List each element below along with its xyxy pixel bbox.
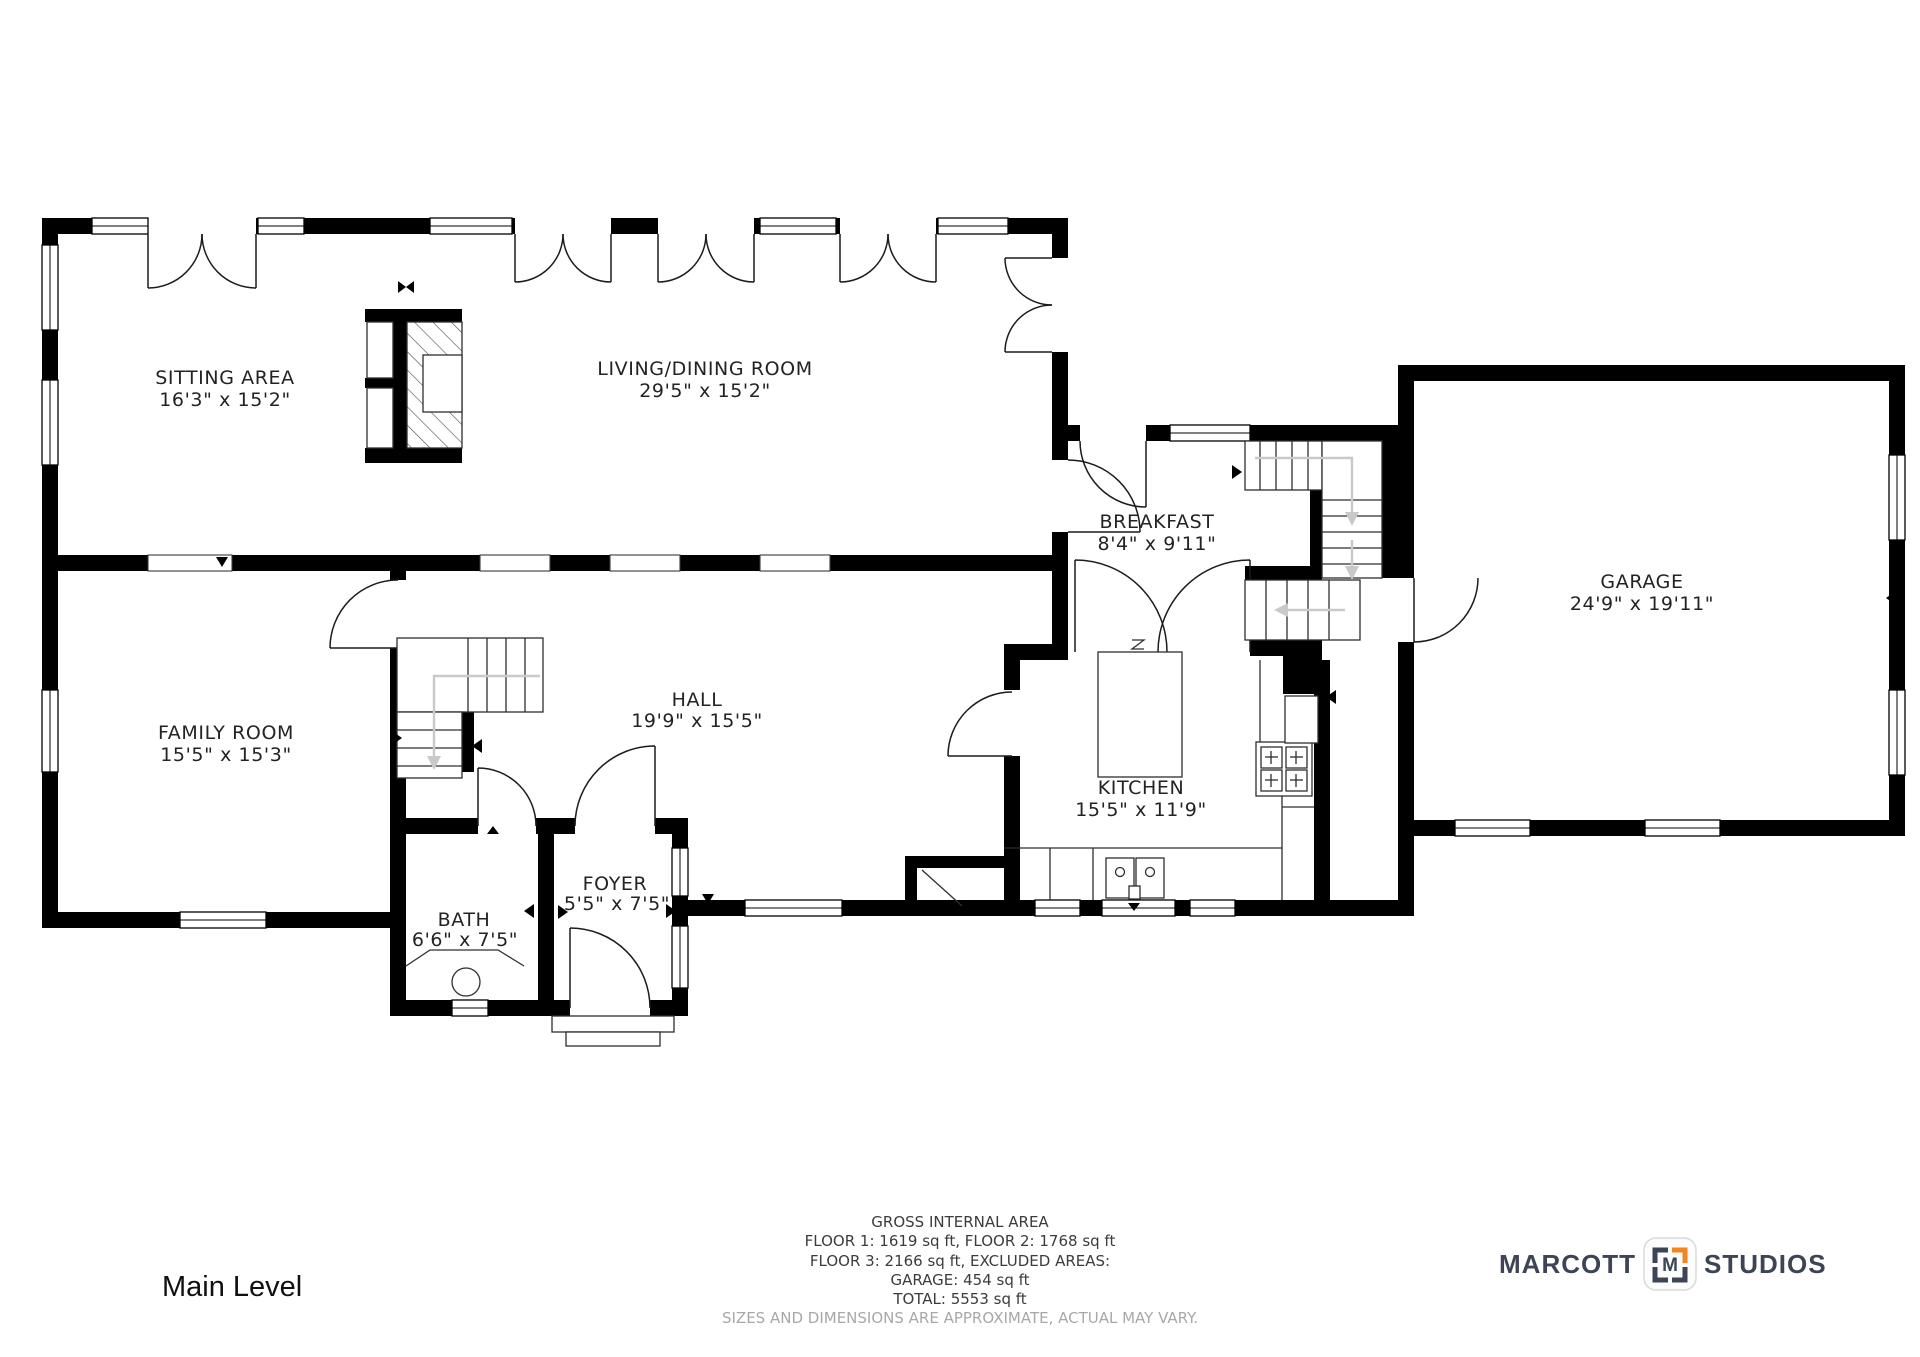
window-icon (1190, 900, 1235, 916)
room-label-breakfast: BREAKFAST (1100, 511, 1215, 533)
window-icon (1035, 900, 1080, 916)
window-icon (1102, 900, 1175, 916)
window-icon (258, 218, 304, 234)
window-icon (672, 926, 688, 988)
brand-name-right: STUDIOS (1704, 1249, 1827, 1279)
area-summary-line: TOTAL: 5553 sq ft (892, 1290, 1026, 1308)
window-icon (42, 245, 58, 330)
room-label-bath: BATH (438, 909, 491, 931)
window-icon (42, 380, 58, 465)
area-summary: GROSS INTERNAL AREA FLOOR 1: 1619 sq ft,… (722, 1213, 1198, 1327)
room-dims-breakfast: 8'4" x 9'11" (1098, 533, 1217, 555)
room-label-living-dining: LIVING/DINING ROOM (597, 358, 812, 380)
room-dims-foyer: 5'5" x 7'5" (564, 893, 670, 915)
room-label-foyer: FOYER (583, 873, 648, 895)
room-dims-garage: 24'9" x 19'11" (1570, 593, 1714, 615)
kitchen-island (1098, 640, 1182, 777)
window-icon (180, 912, 266, 928)
room-label-kitchen: KITCHEN (1098, 777, 1185, 799)
bath-vanity (406, 950, 524, 996)
window-icon (1889, 455, 1905, 540)
window-icon (760, 218, 836, 234)
room-label-sitting-area: SITTING AREA (155, 367, 295, 389)
window-icon (92, 218, 148, 234)
brand-name-left: MARCOTT (1499, 1249, 1636, 1279)
room-label-family-room: FAMILY ROOM (158, 722, 294, 744)
window-icon (1889, 690, 1905, 775)
room-label-hall: HALL (672, 689, 723, 711)
window-icon (1170, 425, 1250, 441)
brand-monogram-letter: M (1662, 1255, 1678, 1276)
room-dims-kitchen: 15'5" x 11'9" (1075, 799, 1207, 821)
room-dims-sitting-area: 16'3" x 15'2" (159, 389, 291, 411)
room-dims-hall: 19'9" x 15'5" (631, 710, 763, 732)
floor-plan-canvas: SITTING AREA 16'3" x 15'2" LIVING/DINING… (0, 0, 1920, 1357)
entry-steps (552, 1016, 674, 1046)
disclaimer-text: SIZES AND DIMENSIONS ARE APPROXIMATE, AC… (722, 1309, 1198, 1327)
window-icon (1455, 820, 1530, 836)
window-layer (42, 218, 1905, 1016)
window-icon (745, 900, 842, 916)
north-indicator (398, 281, 414, 293)
window-icon (1645, 820, 1720, 836)
brand-logo: MARCOTT M STUDIOS (1499, 1238, 1827, 1290)
window-icon (938, 218, 1008, 234)
brand-monogram-icon: M (1644, 1238, 1696, 1290)
area-summary-line: FLOOR 1: 1619 sq ft, FLOOR 2: 1768 sq ft (805, 1232, 1116, 1250)
window-icon (430, 218, 512, 234)
stove-icon (1256, 742, 1312, 796)
room-dims-living-dining: 29'5" x 15'2" (639, 380, 771, 402)
wall-layer (42, 218, 1905, 1016)
window-icon (672, 848, 688, 896)
area-summary-line: GARAGE: 454 sq ft (890, 1271, 1029, 1289)
room-label-garage: GARAGE (1600, 571, 1683, 593)
area-summary-line: FLOOR 3: 2166 sq ft, EXCLUDED AREAS: (810, 1252, 1110, 1270)
window-icon (452, 1000, 488, 1016)
room-dims-bath: 6'6" x 7'5" (412, 929, 518, 951)
fireplace (365, 309, 462, 463)
page-title: Main Level (162, 1271, 302, 1303)
window-icon (42, 690, 58, 772)
area-summary-line: GROSS INTERNAL AREA (871, 1213, 1049, 1231)
kitchen-sink-icon (1106, 858, 1164, 899)
room-dims-family-room: 15'5" x 15'3" (160, 744, 292, 766)
